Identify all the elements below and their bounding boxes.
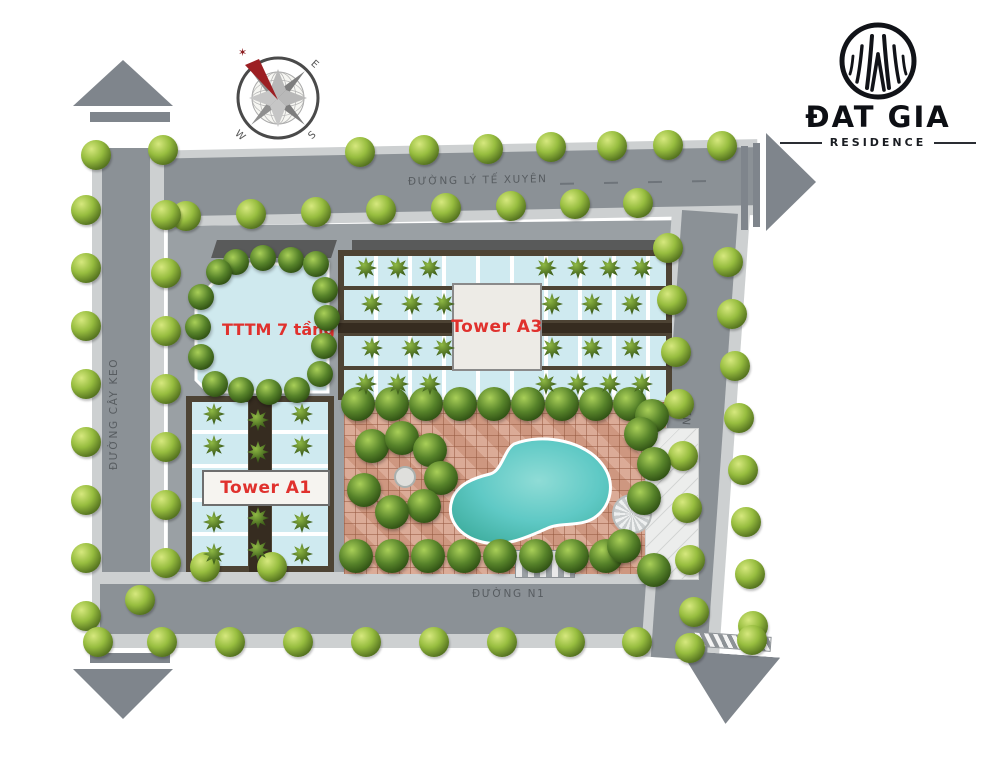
arrow-bar <box>741 146 748 230</box>
roadbed <box>100 584 714 634</box>
compass-south: S <box>306 129 318 141</box>
tower-a1-label-band: Tower A1 <box>202 470 330 506</box>
crosswalk-hatch <box>691 631 772 652</box>
apartment-row <box>344 370 666 400</box>
tile-plaza <box>344 402 666 574</box>
compass-west: W <box>232 128 247 143</box>
road-arrow-south-west <box>73 669 173 719</box>
site-plan-canvas: ĐƯỜNG LÝ TẾ XUYÊN ĐƯỜNG CÂY KEO ĐƯỜNG N1… <box>0 0 1000 766</box>
apartment-row <box>344 256 666 286</box>
compass-rose: ✶ E S W <box>228 42 328 150</box>
road-ly-te-xuyen: ĐƯỜNG LÝ TẾ XUYÊN <box>139 139 758 227</box>
road-arrow-north <box>73 60 173 106</box>
tower-a3-block: Tower A3 <box>338 250 672 400</box>
arrow-bar <box>90 653 170 663</box>
tower-a1-label: Tower A1 <box>220 478 312 498</box>
road-label-n1: ĐƯỜNG N1 <box>472 588 545 600</box>
logo-brand-text: ĐAT GIA <box>805 100 950 134</box>
compass-east: E <box>308 58 320 70</box>
arrow-bar <box>753 143 760 227</box>
logo-rule-right <box>934 142 976 144</box>
road-label-cay-keo: ĐƯỜNG CÂY KEO <box>108 330 120 470</box>
fountain <box>612 494 652 534</box>
tower-a3-core: Tower A3 <box>452 283 542 371</box>
logo-building-icon <box>826 20 930 102</box>
brand-logo: ĐAT GIA RESIDENCE <box>782 20 974 156</box>
tttm-label: TTTM 7 tầng <box>222 320 335 339</box>
road-arrow-south-east <box>676 651 781 728</box>
tower-a3-label: Tower A3 <box>451 317 543 337</box>
paved-terrace <box>645 428 699 580</box>
crosswalk <box>515 550 575 578</box>
arrow-bar <box>90 112 170 122</box>
logo-subtitle-text: RESIDENCE <box>830 136 926 149</box>
logo-rule-left <box>780 142 822 144</box>
tree-icon <box>735 559 765 589</box>
swimming-pool <box>344 402 666 574</box>
road-arrow-south-east-group <box>672 627 784 750</box>
tree-icon <box>731 507 761 537</box>
logo-subtitle-row: RESIDENCE <box>780 136 976 149</box>
road-n1: ĐƯỜNG N1 <box>100 572 714 648</box>
north-star-icon: ✶ <box>238 46 247 59</box>
small-fountain <box>394 466 416 488</box>
tower-a1-block: Tower A1 <box>186 396 334 572</box>
